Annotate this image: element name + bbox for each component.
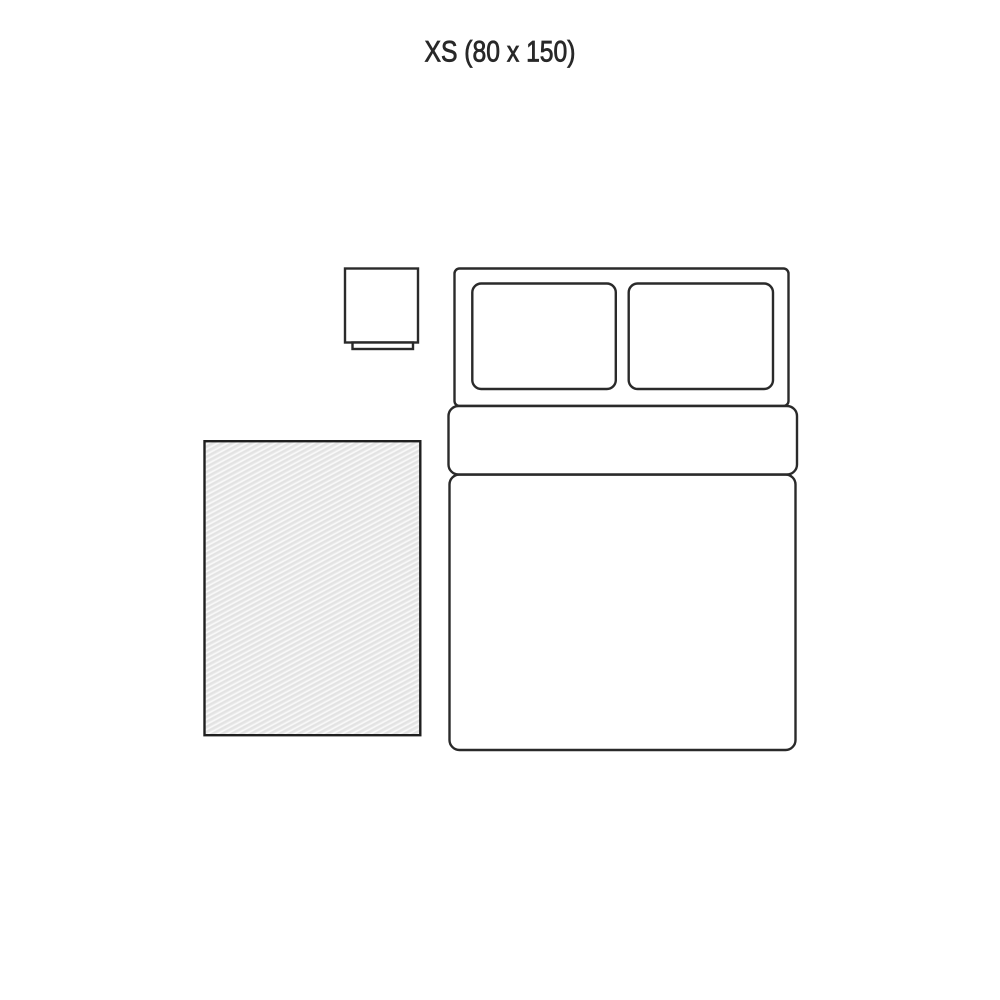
svg-text:XS (80 x 150): XS (80 x 150)	[425, 36, 576, 69]
